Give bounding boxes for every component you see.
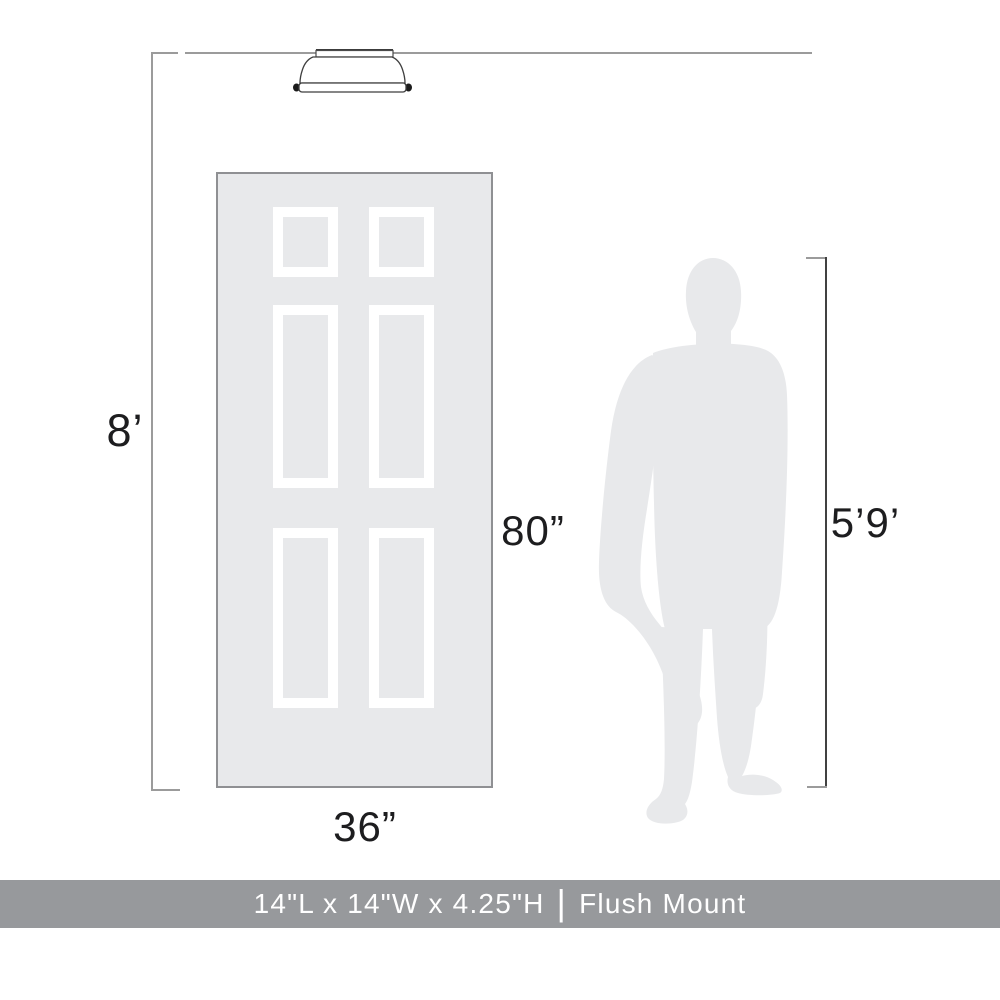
person-right-leg <box>712 627 782 795</box>
person-height-bracket-top-tick <box>806 257 827 259</box>
person-torso <box>653 344 788 629</box>
person-left-leg <box>646 627 703 824</box>
footer-separator: | <box>557 882 568 924</box>
footer-dimensions: 14"L x 14"W x 4.25"H <box>254 888 545 920</box>
footer-bar: 14"L x 14"W x 4.25"H | Flush Mount <box>0 880 1000 928</box>
product-scale-diagram: 8’ 80” 36” 5’9’ 14"L x 1 <box>0 0 1000 1000</box>
person-height-bracket-line <box>825 257 827 788</box>
person-head <box>686 258 741 356</box>
person-height-bracket-bottom-tick <box>807 786 827 788</box>
person-height-label: 5’9’ <box>828 502 903 544</box>
footer-product-type: Flush Mount <box>579 888 746 920</box>
